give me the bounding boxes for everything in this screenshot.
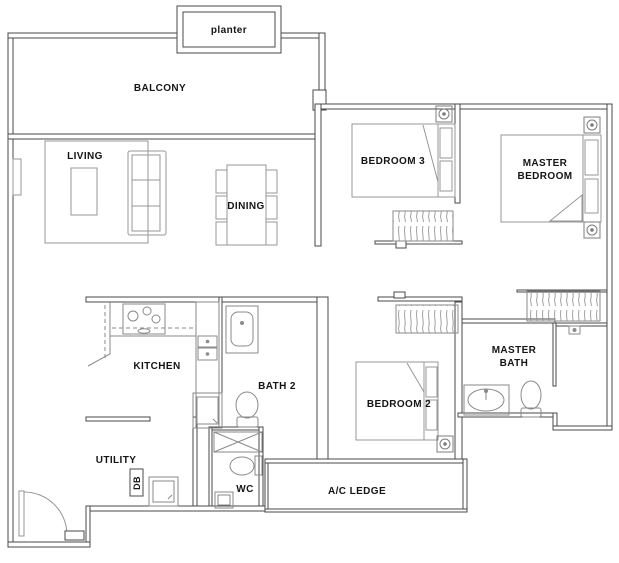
blanket-fold: [423, 125, 438, 182]
wall-dining-bedroom3: [315, 104, 321, 246]
dining-chair: [266, 222, 277, 245]
wall-acledge-bottom: [265, 509, 467, 512]
burner: [152, 315, 160, 323]
wall-left-outer: [8, 33, 13, 546]
label-master-bedroom-line1: MASTER: [523, 158, 568, 169]
ceiling-symbol-master-bottom: [584, 222, 600, 238]
label-planter: planter: [211, 25, 247, 36]
dining-chair: [266, 196, 277, 219]
masterbath-toilet-bowl: [521, 381, 541, 409]
wall-top-mid: [279, 33, 324, 38]
sofa-cushions: [132, 155, 160, 231]
wall-bedroom2-left: [317, 297, 328, 463]
wardrobes: [393, 211, 600, 333]
floor-plan: planter BALCONY LIVING DINING BEDROOM 3 …: [0, 0, 619, 563]
wall-kitchen-top: [86, 297, 319, 302]
living-furniture: [45, 141, 166, 243]
label-master-bath-line2: BATH: [500, 358, 529, 369]
pillow: [440, 161, 452, 191]
wall-bedroom3-tab: [396, 241, 406, 248]
wall-wc-left: [209, 427, 212, 510]
wall-entrance-bottom: [8, 542, 90, 547]
pillow: [585, 140, 598, 175]
floor-plan-page: planter BALCONY LIVING DINING BEDROOM 3 …: [0, 0, 619, 563]
entrance-door: [19, 491, 84, 540]
kitchen-counter-column: [196, 302, 219, 428]
burner: [128, 311, 138, 321]
wall-bedroom3-master: [455, 104, 460, 203]
walls: [8, 33, 612, 547]
label-ac-ledge: A/C LEDGE: [328, 486, 386, 497]
entrance-door-swing-arc: [24, 492, 67, 535]
living-window-sill: [13, 159, 21, 195]
bedroom2-wardrobe: [396, 305, 458, 333]
label-living: LIVING: [67, 151, 103, 162]
label-dining: DINING: [227, 201, 264, 212]
blanket-fold: [550, 195, 582, 221]
wall-entrance-left: [86, 506, 90, 547]
pillow: [585, 179, 598, 213]
blanket-fold: [407, 363, 424, 392]
label-bedroom2: BEDROOM 2: [367, 399, 431, 410]
ceiling-symbol-master-top: [584, 117, 600, 133]
ceiling-symbol-bedroom2: [437, 436, 453, 452]
dining-chair: [216, 170, 227, 193]
service-shaft: [214, 432, 262, 452]
label-bath2: BATH 2: [258, 381, 296, 392]
wall-masterbath-bottom-right: [553, 426, 612, 430]
bath2-toilet-base: [237, 417, 258, 427]
label-master-bath-line1: MASTER: [492, 345, 537, 356]
label-bedroom3: BEDROOM 3: [361, 156, 425, 167]
wall-acledge-left: [265, 460, 268, 511]
wall-acledge-top: [265, 459, 463, 463]
wall-top-left: [8, 33, 180, 38]
wall-bedroom2-tab: [394, 292, 405, 298]
wall-utility-top: [86, 417, 150, 421]
bath2-basin: [231, 312, 253, 346]
label-db: DB: [132, 476, 142, 490]
bath2-fixtures: [226, 306, 258, 427]
bedroom3-wardrobe: [393, 211, 453, 241]
label-utility: UTILITY: [96, 455, 137, 466]
kitchen-counter-left: [88, 302, 110, 366]
dining-chair: [266, 170, 277, 193]
masterbath-fixtures: [464, 326, 580, 417]
entrance-door-stop: [65, 531, 84, 540]
pillow: [426, 367, 437, 397]
wc-toilet-bowl: [230, 457, 254, 475]
label-kitchen: KITCHEN: [133, 361, 180, 372]
wall-top-right: [319, 104, 612, 109]
coffee-table: [71, 168, 97, 215]
label-master-bedroom-line2: BEDROOM: [517, 171, 572, 182]
wall-shower-left: [553, 323, 556, 386]
entrance-door-leaf: [19, 491, 24, 536]
wall-bottom-long: [86, 506, 267, 511]
stove-control: [138, 329, 150, 333]
dining-chair: [216, 196, 227, 219]
label-balcony: BALCONY: [134, 83, 186, 94]
bath2-toilet-bowl: [236, 392, 258, 418]
dining-chair: [216, 222, 227, 245]
wall-bedroom2-top: [378, 297, 462, 301]
wall-right-outer: [607, 104, 612, 428]
master-wardrobe: [527, 291, 600, 321]
wall-acledge-right: [463, 459, 467, 512]
burner: [143, 307, 151, 315]
label-wc: WC: [236, 484, 253, 495]
wall-utility-right: [193, 417, 197, 510]
pillow: [440, 128, 452, 158]
wall-balcony-bottom: [8, 134, 321, 139]
wc-fixtures: [215, 456, 262, 508]
